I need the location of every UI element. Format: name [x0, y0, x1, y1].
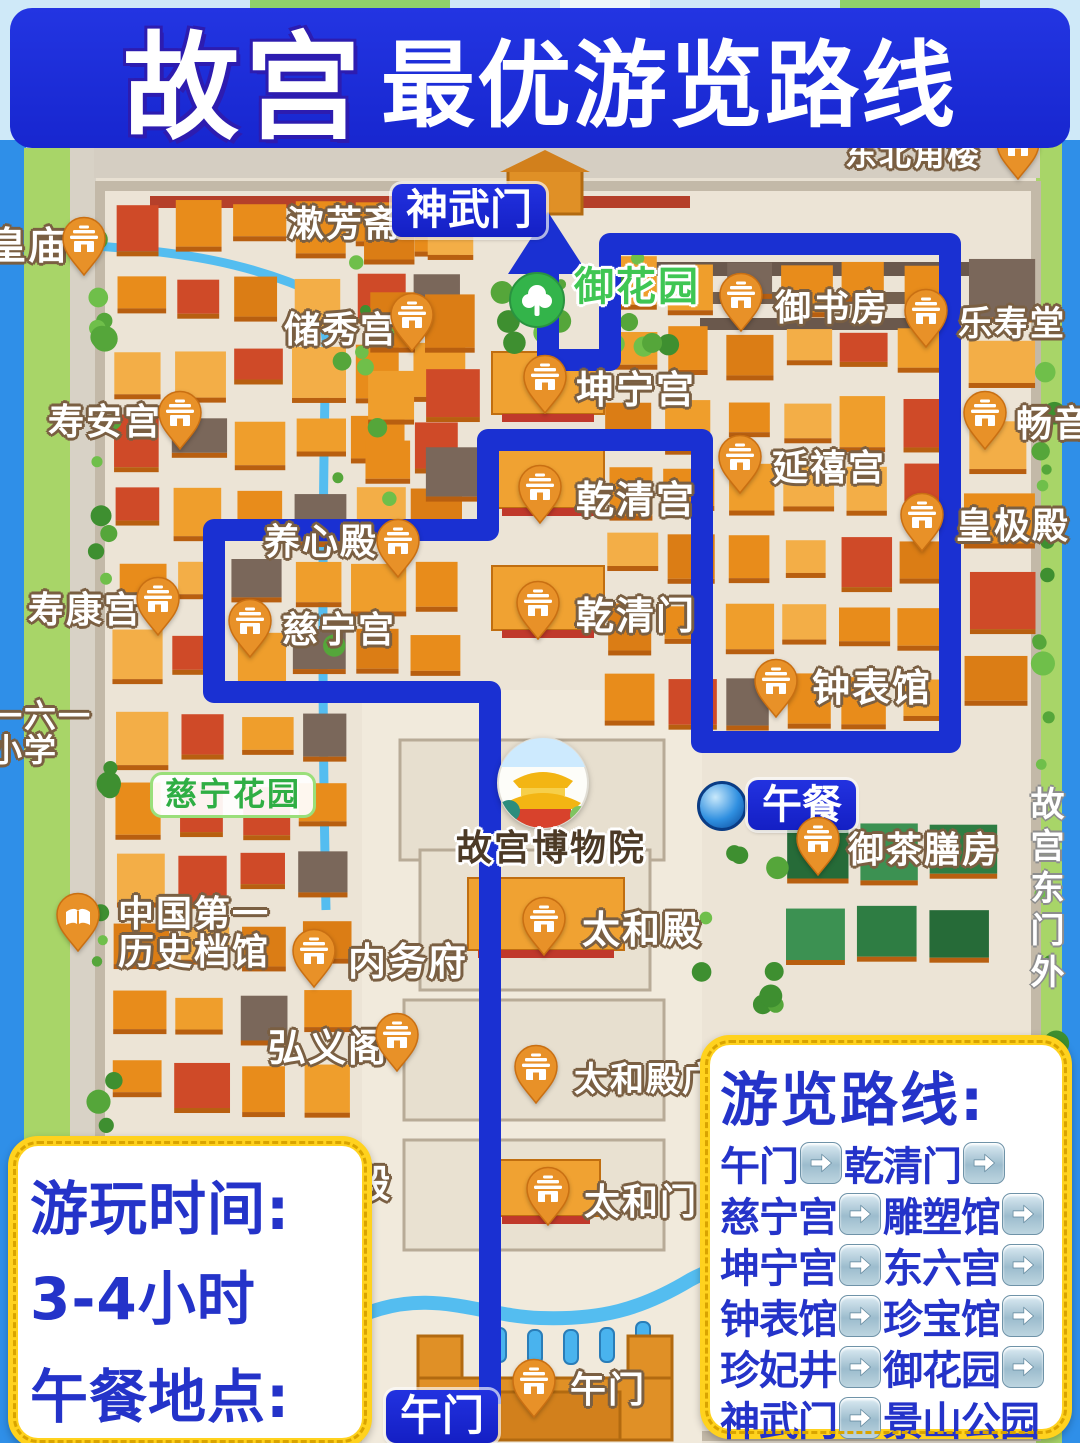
cininggong-label: 慈宁宫	[282, 612, 396, 650]
yanxigong-label: 延禧宫	[772, 450, 886, 488]
right-arrow-icon	[1002, 1346, 1044, 1388]
kunninggong-pin	[521, 354, 569, 414]
route-stop: 景山公园	[883, 1389, 1039, 1443]
visit-time-value: 3-4小时	[30, 1252, 350, 1336]
taihedian-pin	[520, 896, 568, 956]
qianqingmen-label: 乾清门	[576, 596, 696, 636]
hongyige-label: 弘义阁	[268, 1028, 388, 1068]
huangjidian-label: 皇极殿	[956, 508, 1070, 546]
title-route-text: 最优游览路线	[381, 10, 957, 146]
route-row-5: 珍妃井御花园	[720, 1341, 1052, 1392]
visit-time-title: 游玩时间:	[30, 1162, 350, 1246]
shenwumen-badge-label: 神武门	[392, 184, 546, 237]
route-stop: 乾清门	[844, 1134, 961, 1192]
shouangong-pin	[156, 390, 204, 450]
right-arrow-icon	[800, 1142, 842, 1184]
route-row-3: 坤宁宫东六宫	[720, 1239, 1052, 1290]
shoukanggong-label: 寿康宫	[28, 592, 142, 630]
chuxiugong-pin	[388, 292, 436, 352]
shoukanggong-pin	[134, 576, 182, 636]
neiwufu-label: 内务府	[348, 942, 468, 982]
changyinge-label: 畅音	[1016, 406, 1080, 444]
gugong-bowuyuan-label: 故宫博物院	[456, 830, 646, 868]
huangjidian-pin	[898, 492, 946, 552]
hongyige-pin	[373, 1012, 421, 1072]
yuhuayuan-label: 御花园	[574, 266, 700, 308]
leshoutang-label: 乐寿堂	[958, 306, 1066, 342]
yuchashanfang-label: 御茶膳房	[848, 832, 1000, 870]
neiwufu-pin	[290, 928, 338, 988]
route-stop: 珍妃井	[720, 1338, 837, 1396]
right-arrow-icon	[1002, 1193, 1044, 1235]
zhongbiaoguan-pin	[752, 658, 800, 718]
yuchashanfang-pin	[794, 816, 842, 876]
gugong-dongmenwai-label: 故宫东门外	[1026, 786, 1062, 996]
route-stop: 雕塑馆	[883, 1185, 1000, 1243]
qianqingmen-pin	[514, 580, 562, 640]
yangxindian-pin	[374, 518, 422, 578]
right-arrow-icon	[963, 1142, 1005, 1184]
yanxigong-pin	[716, 434, 764, 494]
huangmiao-pin	[60, 216, 108, 276]
right-arrow-icon	[839, 1346, 881, 1388]
route-stop: 午门	[720, 1134, 798, 1192]
route-stop: 神武门	[720, 1389, 837, 1443]
taihedian-guangchang-pin	[512, 1044, 560, 1104]
taihedian-guangchang-label: 太和殿广	[574, 1062, 718, 1098]
right-arrow-icon	[839, 1193, 881, 1235]
right-arrow-icon	[839, 1244, 881, 1286]
taihemen-pin	[524, 1166, 572, 1226]
changyinge-pin	[961, 390, 1009, 450]
right-arrow-icon	[1002, 1244, 1044, 1286]
qianqinggong-pin	[516, 464, 564, 524]
yushufang-pin	[717, 272, 765, 332]
lunch-place-title: 午餐地点:	[30, 1350, 350, 1434]
shouangong-label: 寿安宫	[48, 404, 162, 442]
wumen-pin	[510, 1358, 558, 1418]
yushufang-label: 御书房	[775, 290, 889, 328]
visit-info-box: 游玩时间: 3-4小时 午餐地点: 导航“箭亭”	[8, 1136, 372, 1443]
chuxiugong-label: 储秀宫	[284, 312, 398, 350]
right-arrow-icon	[1002, 1295, 1044, 1337]
taihedian-label: 太和殿	[582, 910, 702, 950]
route-stop: 钟表馆	[720, 1287, 837, 1345]
wumen-label: 午门	[570, 1372, 646, 1410]
forbidden-city-route-poster: 东北角楼漱芳斋皇庙御花园御书房乐寿堂储秀宫坤宁宫寿安宫畅音延禧宫乾清宫皇极殿养心…	[0, 0, 1080, 1443]
route-list-rows: 午门乾清门慈宁宫雕塑馆坤宁宫东六宫钟表馆珍宝馆珍妃井御花园神武门景山公园	[720, 1137, 1052, 1443]
taihemen-label: 太和门	[584, 1184, 698, 1222]
zhongbiaoguan-label: 钟表馆	[812, 668, 932, 708]
route-stop: 慈宁宫	[720, 1185, 837, 1243]
qianqinggong-label: 乾清宫	[576, 480, 696, 520]
zhongguo-diyi-lishi-dangguan-label: 中国第一历史档馆	[118, 896, 270, 972]
route-row-6: 神武门景山公园	[720, 1392, 1052, 1443]
route-list-box: 游览路线: 午门乾清门慈宁宫雕塑馆坤宁宫东六宫钟表馆珍宝馆珍妃井御花园神武门景山…	[700, 1035, 1072, 1439]
yangxindian-label: 养心殿	[264, 524, 378, 562]
leshoutang-pin	[902, 288, 950, 348]
school-161-label: 一六一小学	[0, 700, 92, 768]
cining-huayuan-label: 慈宁花园	[150, 772, 316, 818]
route-stop: 东六宫	[883, 1236, 1000, 1294]
route-row-4: 钟表馆珍宝馆	[720, 1290, 1052, 1341]
huangmiao-label: 皇庙	[0, 226, 68, 266]
right-arrow-icon	[839, 1397, 881, 1439]
route-row-1: 午门乾清门	[720, 1137, 1052, 1188]
title-gugong: 故宫	[123, 0, 367, 162]
wumen-badge-label: 午门	[386, 1390, 498, 1443]
title-banner: 故宫 最优游览路线	[10, 8, 1070, 148]
shufangzhai-label: 漱芳斋	[288, 206, 402, 244]
route-row-2: 慈宁宫雕塑馆	[720, 1188, 1052, 1239]
cininggong-pin	[226, 598, 274, 658]
route-stop: 御花园	[883, 1338, 1000, 1396]
kunninggong-label: 坤宁宫	[576, 370, 696, 410]
zhongguo-diyi-lishi-dangguan-pin	[54, 892, 102, 952]
right-arrow-icon	[839, 1295, 881, 1337]
route-stop: 珍宝馆	[883, 1287, 1000, 1345]
route-stop: 坤宁宫	[720, 1236, 837, 1294]
route-list-title: 游览路线:	[720, 1053, 1052, 1137]
